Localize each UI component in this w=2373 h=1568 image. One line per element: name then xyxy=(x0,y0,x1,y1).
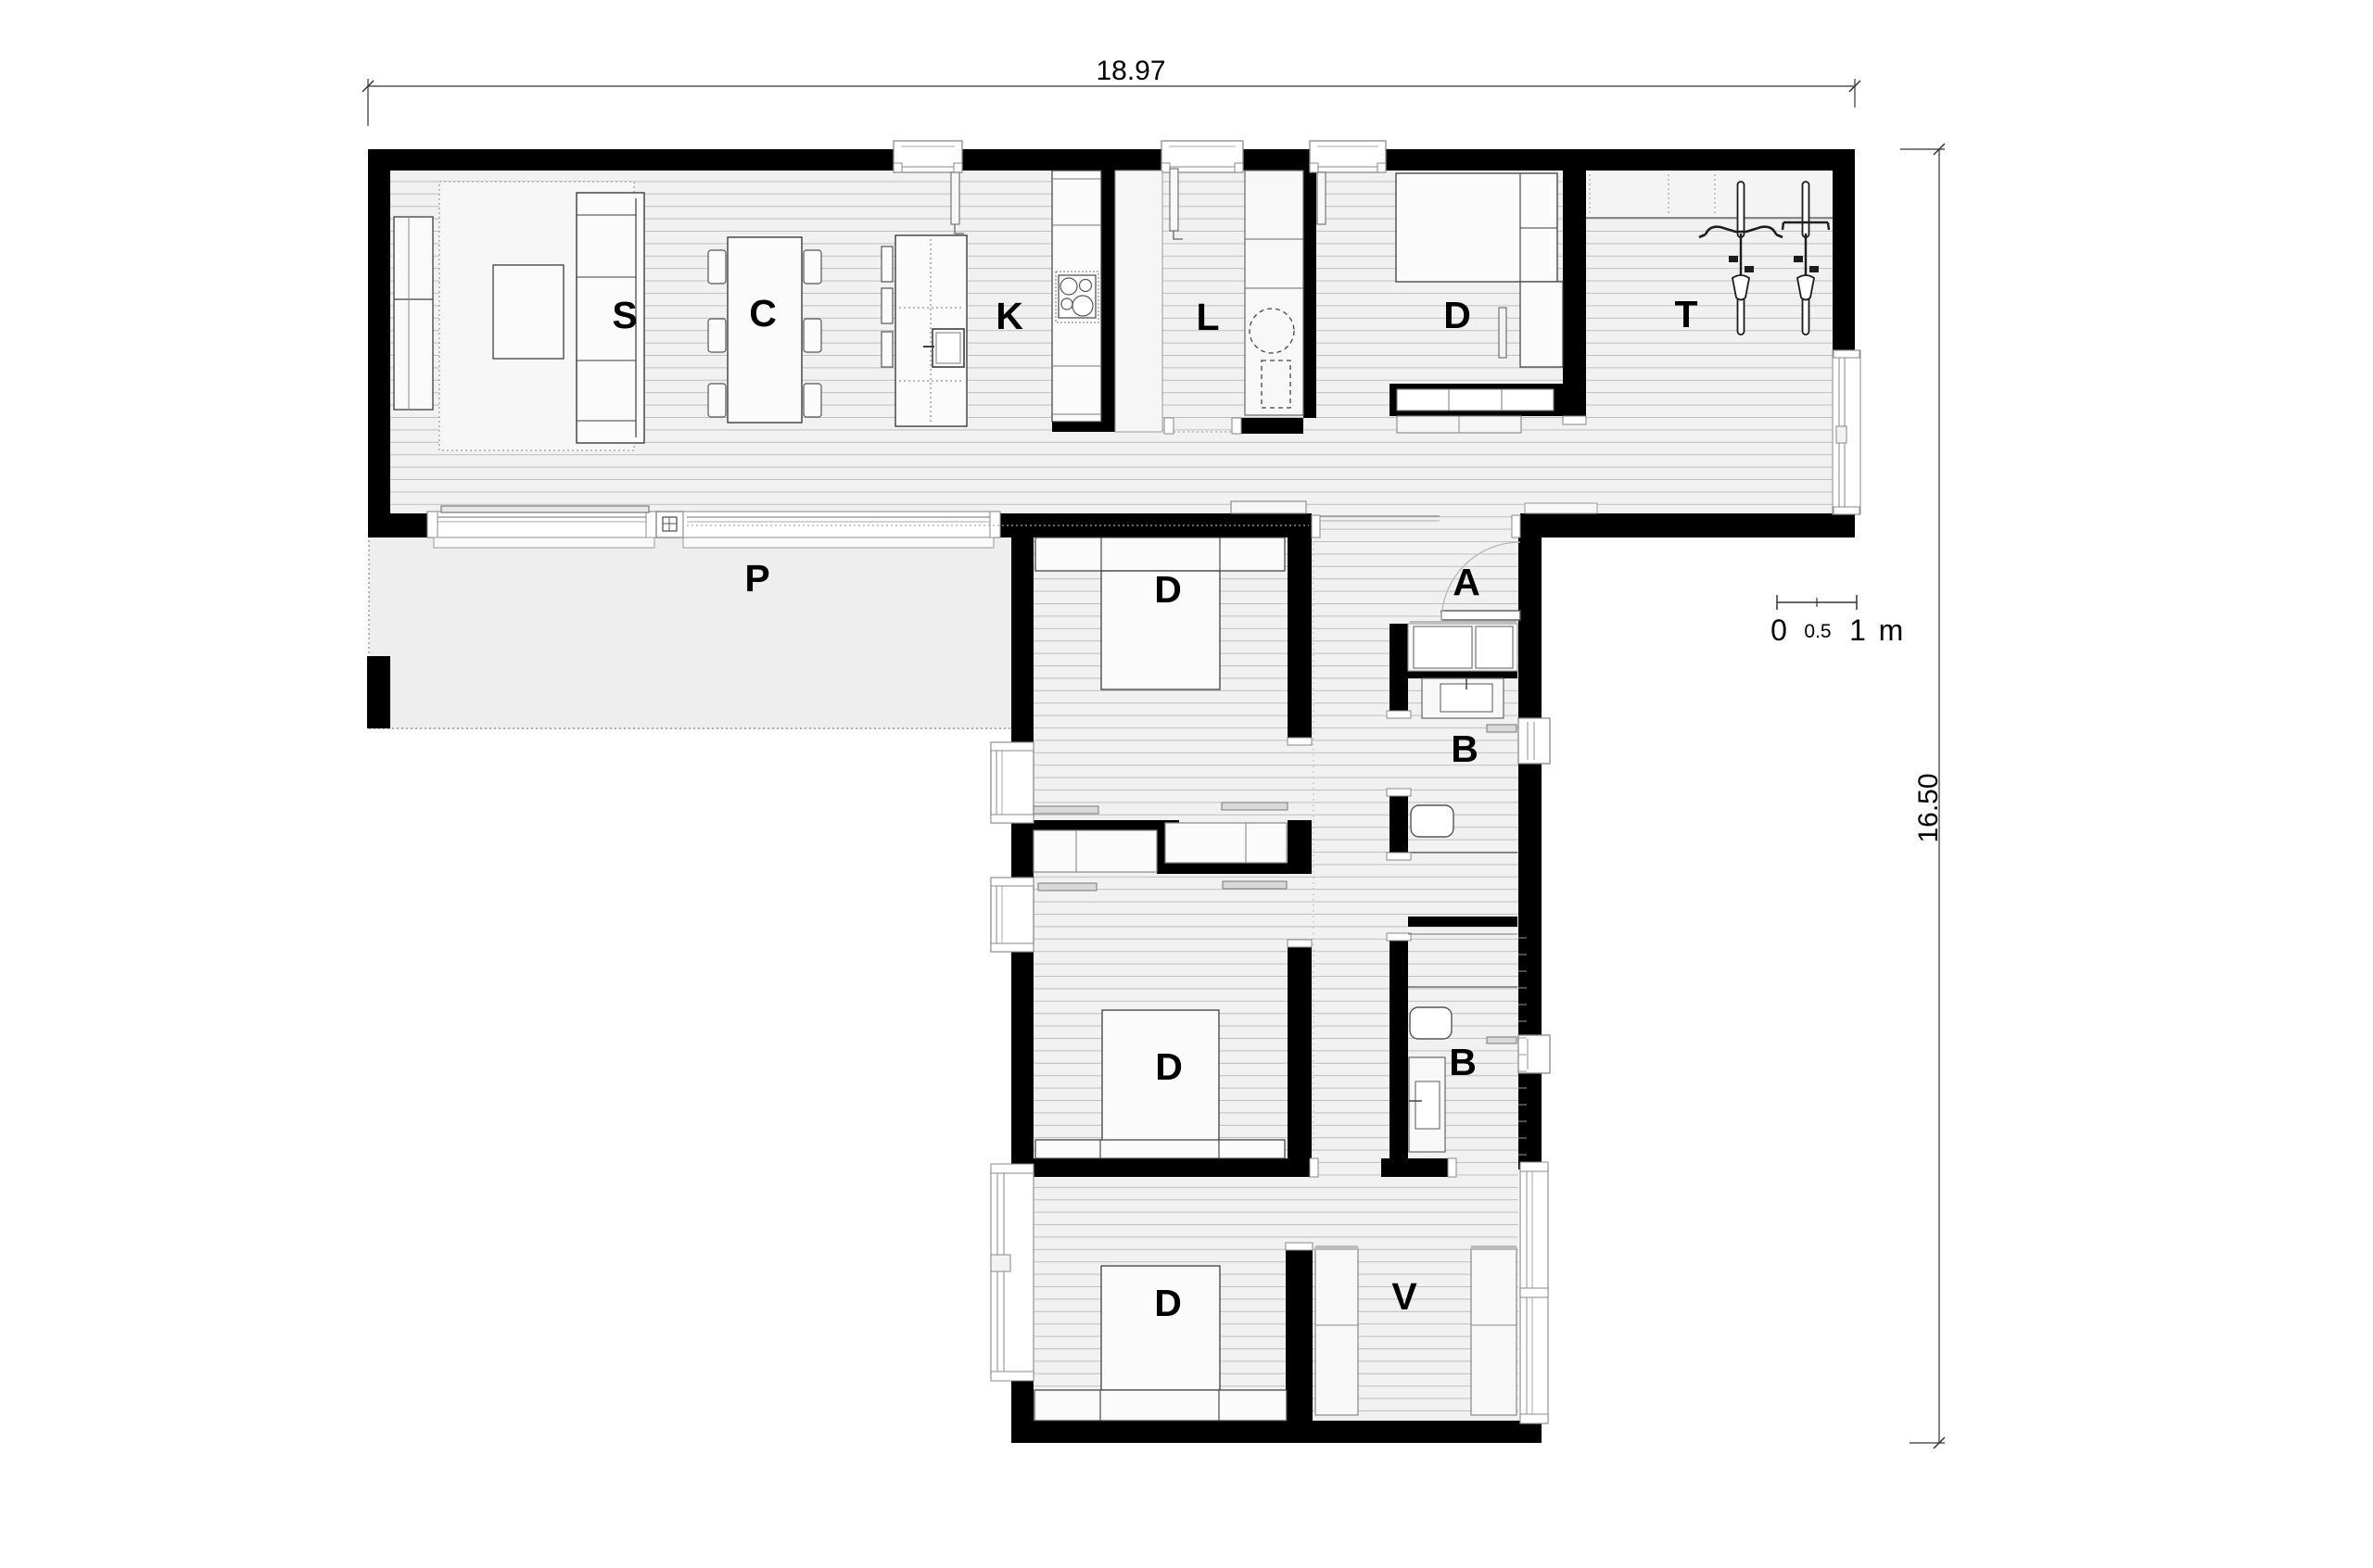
svg-text:B: B xyxy=(1449,1041,1477,1083)
svg-text:D: D xyxy=(1443,294,1471,336)
svg-text:1: 1 xyxy=(1849,613,1866,647)
svg-text:T: T xyxy=(1674,293,1697,335)
svg-text:0.5: 0.5 xyxy=(1804,621,1831,642)
svg-text:K: K xyxy=(996,295,1023,337)
svg-text:18.97: 18.97 xyxy=(1096,56,1165,86)
svg-text:L: L xyxy=(1196,296,1219,338)
svg-text:S: S xyxy=(612,294,637,336)
svg-text:16.50: 16.50 xyxy=(1913,773,1944,842)
svg-text:D: D xyxy=(1154,1282,1182,1324)
svg-text:D: D xyxy=(1155,1045,1183,1088)
svg-text:D: D xyxy=(1154,568,1182,611)
svg-text:A: A xyxy=(1453,561,1480,603)
svg-text:C: C xyxy=(749,292,777,335)
svg-text:P: P xyxy=(744,557,769,600)
svg-text:m: m xyxy=(1879,613,1904,647)
svg-text:B: B xyxy=(1451,727,1478,770)
svg-text:V: V xyxy=(1391,1275,1417,1318)
svg-text:0: 0 xyxy=(1770,613,1787,647)
